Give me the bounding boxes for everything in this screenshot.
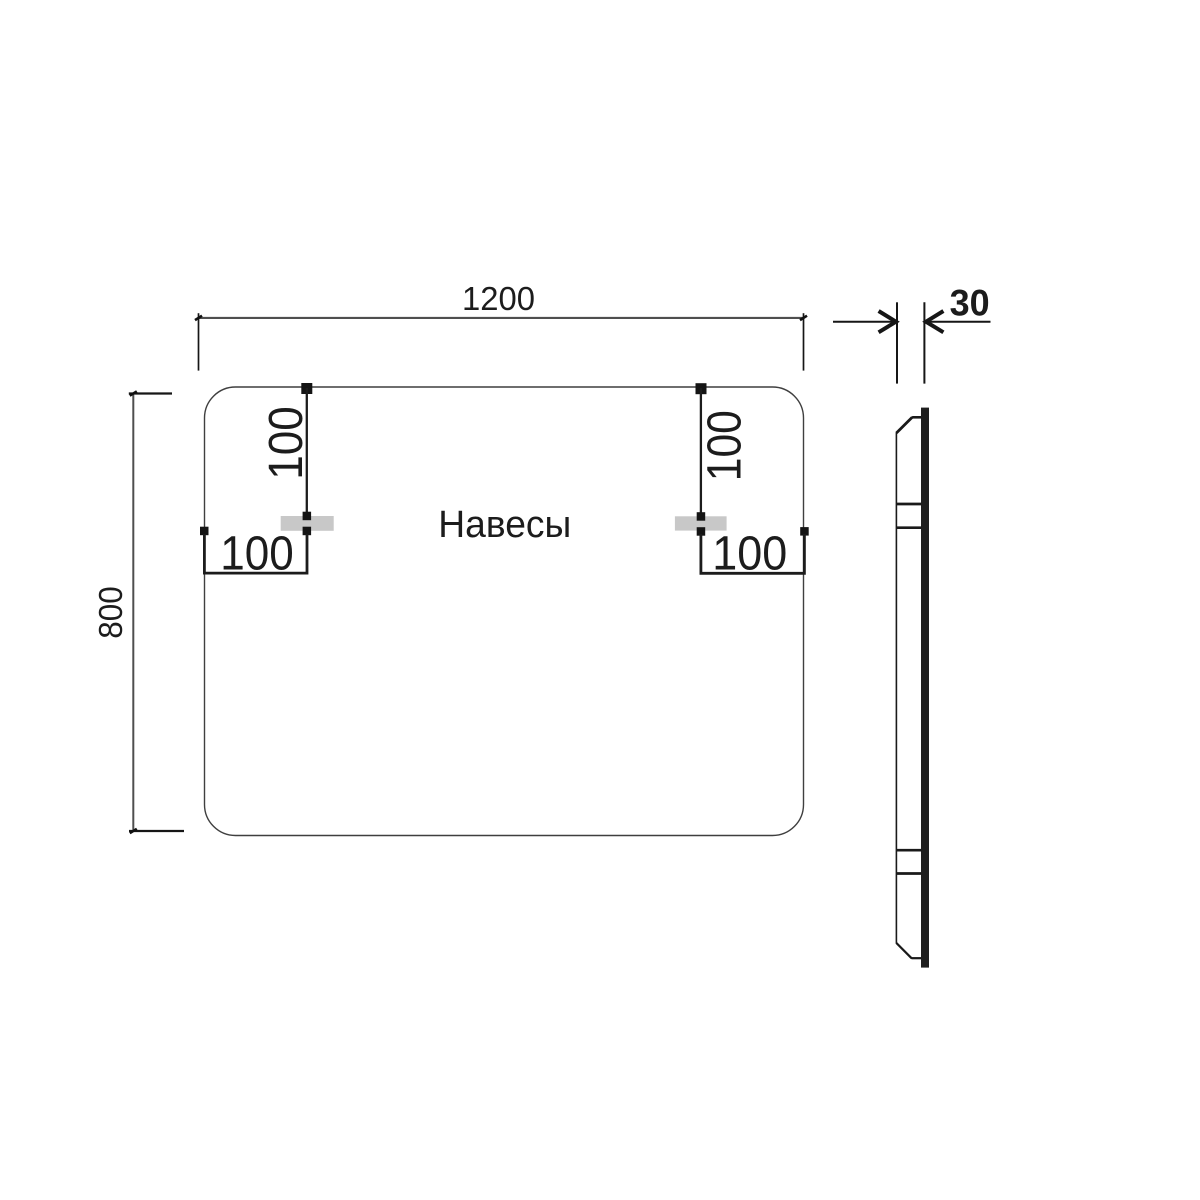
svg-text:Навесы: Навесы xyxy=(438,504,571,546)
svg-text:100: 100 xyxy=(712,527,787,580)
svg-text:30: 30 xyxy=(950,283,990,324)
svg-text:800: 800 xyxy=(92,586,129,639)
svg-text:100: 100 xyxy=(699,410,752,481)
svg-text:1200: 1200 xyxy=(462,280,535,317)
svg-text:100: 100 xyxy=(220,528,294,581)
svg-text:100: 100 xyxy=(260,406,313,480)
